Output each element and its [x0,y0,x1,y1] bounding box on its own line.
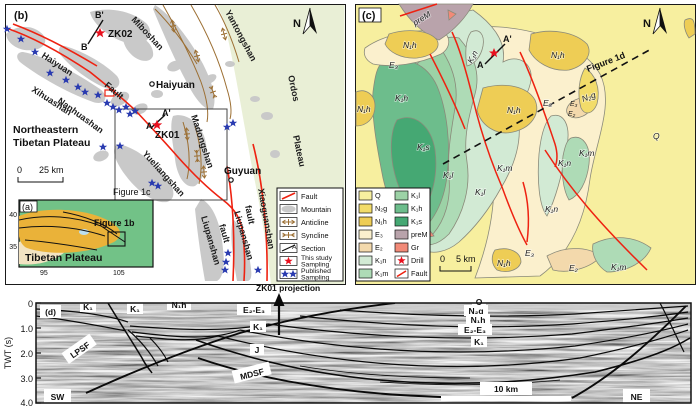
twt-tick-3: 3.0 [20,374,33,384]
k1-label-d: K₁ [474,337,484,347]
k1-label-b: K₁ [130,304,140,314]
haiyuan-town-dot [150,82,154,86]
figure-1-composite: (b) B' B ZK02 Miboshan Yantongshan Haiyu… [0,0,700,414]
sw-label: SW [51,392,66,402]
scale-zero-b: 0 [17,165,22,175]
inset-lat-35: 35 [9,244,17,251]
n1h-label-4: N₁h [507,105,521,115]
section-b-label: B [81,42,88,52]
k1-label-c: K₁ [253,322,263,332]
n1h-label-5: N₁h [497,258,511,268]
inset-lat-40: 40 [9,212,17,219]
n1h-label-3: N₁h [551,50,565,60]
legend-fault-c: Fault [411,269,427,278]
legend-n2g: N₂g [375,204,387,213]
k1n-label-2: K₁n [558,158,571,168]
twt-tick-2: 2.0 [20,349,33,359]
inset-tibetan-plateau-label: Tibetan Plateau [25,252,102,264]
legend-k1m: K₁m [375,269,388,278]
legend-section-label: Section [301,244,325,253]
section-b-prime-label: B' [95,10,104,20]
e3-label-small: E₃ [570,101,578,108]
k1m-label-3: K₁m [611,262,626,272]
section-a-prime-label: A' [162,108,171,118]
k1n-label-3: K₁n [545,204,558,214]
legend-e3: E₃ [375,230,383,239]
legend-k1n: K₁n [375,256,386,265]
twt-tick-1: 1.0 [20,324,33,334]
legend-prem: preM [411,230,428,239]
legend-c: Q N₂g N₁h E₃ E₂ K₁n K₁m K₁l K₁h K₁s preM… [356,188,430,281]
legend-k1s: K₁s [411,217,422,226]
legend-e2: E₂ [375,243,383,252]
legend-mountain-label: Mountain [301,205,331,214]
north-label-c: N [643,18,651,30]
k1m-label-1: K₁m [497,163,512,173]
ne-label: NE [631,392,643,402]
scale-5km-c: 5 km [456,254,476,264]
k1m-label-2: K₁m [579,148,594,158]
haiyuan-town-label: Haiyuan [156,80,195,91]
e2-label-small: E₂ [568,111,576,118]
e2-label-2: E₂ [569,263,579,273]
n1h-label-2: N₁h [357,104,371,114]
legend-b: A Fault Mountain Anticline Syncline Sect… [277,188,343,282]
panel-d-tag: (d) [45,307,56,317]
inset-lon-105: 105 [113,270,125,277]
svg-text:A: A [292,244,297,251]
n1h-label-d2: N₁h [471,315,486,325]
legend-n1h: N₁h [375,217,387,226]
k1s-label: K₁s [417,142,430,152]
section-a-label: A [146,121,153,131]
e3-label-1: E₃ [389,60,399,70]
e3-label-2: E₃ [543,98,553,108]
panel-b-map: (b) B' B ZK02 Miboshan Yantongshan Haiyu… [5,4,346,285]
k1l-label-2: K₁l [475,187,486,197]
figure-1b-label: Figure 1b [94,218,135,228]
section-a-prime-label-c: A' [503,34,512,44]
section-a-label-c: A [477,60,484,70]
scale-25km-b: 25 km [39,165,64,175]
legend-anticline-label: Anticline [301,218,329,227]
legend-q: Q [375,191,381,200]
zk02-label: ZK02 [108,29,133,40]
legend-fault-label: Fault [301,192,317,201]
twt-tick-0: 0 [28,299,33,309]
legend-k1l: K₁l [411,191,420,200]
region-label-line2: Tibetan Plateau [13,137,90,149]
north-label-b: N [293,18,301,30]
n1h-label-1: N₁h [403,40,417,50]
region-label-line1: Northeastern [13,124,78,136]
inset-a-tibetan-plateau: (a) Figure 1b Tibetan Plateau 40 35 95 1… [9,200,153,277]
n1h-label-d: N₁h [172,300,187,310]
guyuan-town-dot [229,178,233,182]
panel-d-seismic-section: (d) K₁ K₁ N₁h E₂-E₃ K₁ J Q N₂g N₁h E₂-E₃… [0,278,700,414]
j-label: J [255,345,260,355]
twt-tick-4: 4.0 [20,398,33,408]
q-label: Q [653,131,660,141]
k1l-label-1: K₁l [443,170,454,180]
e2e3-label-d: E₂-E₃ [243,305,265,315]
scale-zero-c: 0 [440,254,445,264]
k1h-label: K₁h [395,93,408,103]
legend-syncline-label: Syncline [301,231,329,240]
panel-c-map: Figure 1d A' A preM N₁h E₃ N₁h K₁h K₁s K… [355,4,696,285]
e3-label-3: E₃ [525,248,535,258]
legend-mountain-icon [282,206,296,213]
scale-bar-10km [441,396,571,401]
panel-c-tag: (c) [362,10,376,22]
legend-k1h: K₁h [411,204,422,213]
panel-b-tag: (b) [14,10,28,22]
figure-1c-label: Figure 1c [113,187,151,197]
guyuan-town-label: Guyuan [224,166,261,177]
twt-axis-label: TWT (s) [3,337,13,369]
inset-a-tag: (a) [22,202,33,212]
zk01-label: ZK01 [155,130,180,141]
e2e3-label-d2: E₂-E₃ [464,325,486,335]
zk01-projection-label: ZK01 projection [256,283,320,293]
arrow-up-icon [274,293,285,306]
scale-10km-label: 10 km [494,384,519,394]
legend-gr: Gr [411,243,420,252]
legend-drill: Drill [411,256,424,265]
inset-lon-95: 95 [40,270,48,277]
